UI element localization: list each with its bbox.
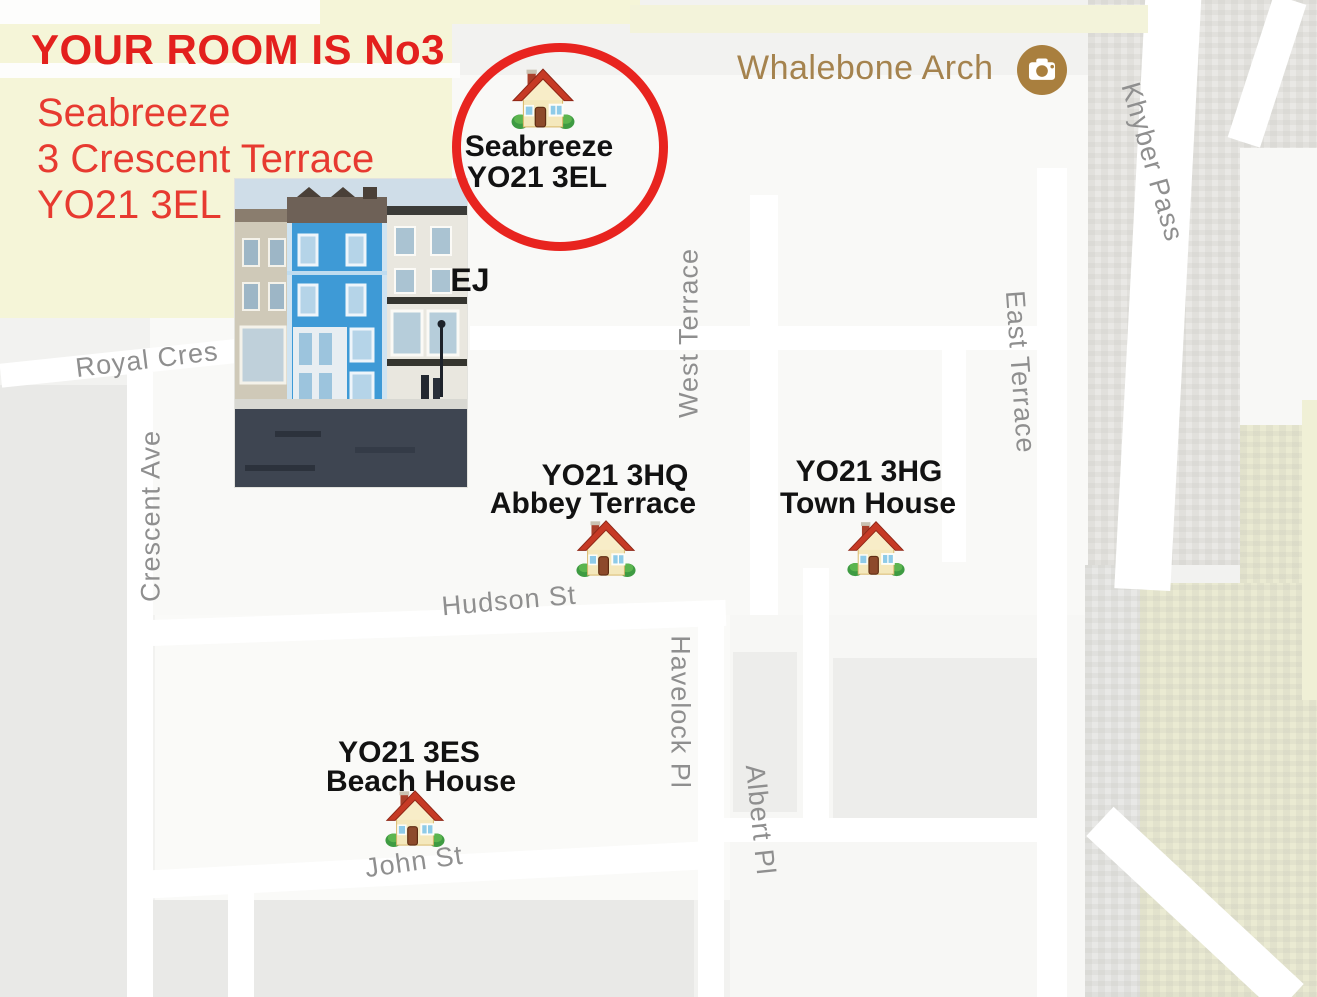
road-crescent-terrace <box>470 326 1062 350</box>
map-yellow-strip-top <box>320 0 640 24</box>
map-yellow-sliver-east <box>1302 400 1317 700</box>
map-block-mid-b <box>833 658 1037 818</box>
annotation-address-line-1: Seabreeze <box>37 90 230 136</box>
building-photo <box>235 179 467 487</box>
camera-icon <box>1017 45 1067 95</box>
road-west-terrace <box>750 195 778 615</box>
annotation-title: YOUR ROOM IS No3 <box>31 26 445 74</box>
town-house-house-icon <box>846 517 906 577</box>
map-block-west <box>0 385 127 997</box>
target-name-label: Seabreeze <box>465 130 613 164</box>
road-mid-vertical <box>942 350 966 562</box>
property-town-postcode: YO21 3HG <box>796 455 943 489</box>
abbey-terrace-house-icon <box>575 516 637 578</box>
map-block-east-lower <box>1085 565 1140 997</box>
map-yellow-strip-north <box>630 5 1148 33</box>
annotation-address-line-3: YO21 3EL <box>37 182 222 228</box>
street-label-havelock-pl: Havelock Pl <box>665 635 696 789</box>
target-house-icon <box>510 64 576 130</box>
street-label-crescent-ave: Crescent Ave <box>136 430 167 602</box>
road-east-terrace <box>1037 168 1067 997</box>
road-albert-pl <box>803 568 829 842</box>
map-open-area-northeast <box>1240 148 1317 432</box>
beach-house-house-icon <box>384 786 446 848</box>
landmark-label-whalebone-arch: Whalebone Arch <box>737 49 994 88</box>
target-postcode-label: YO21 3EL <box>467 161 607 195</box>
map-white-strip-top <box>0 0 320 24</box>
annotation-address-line-2: 3 Crescent Terrace <box>37 136 374 182</box>
road-stub-south <box>228 884 254 997</box>
partial-postcode-label: EJ <box>450 262 489 299</box>
property-town-name: Town House <box>780 487 956 521</box>
annotated-map: Royal Cres Crescent Ave West Terrace Eas… <box>0 0 1317 997</box>
road-havelock-pl <box>698 612 724 997</box>
street-label-west-terrace: West Terrace <box>674 248 705 418</box>
